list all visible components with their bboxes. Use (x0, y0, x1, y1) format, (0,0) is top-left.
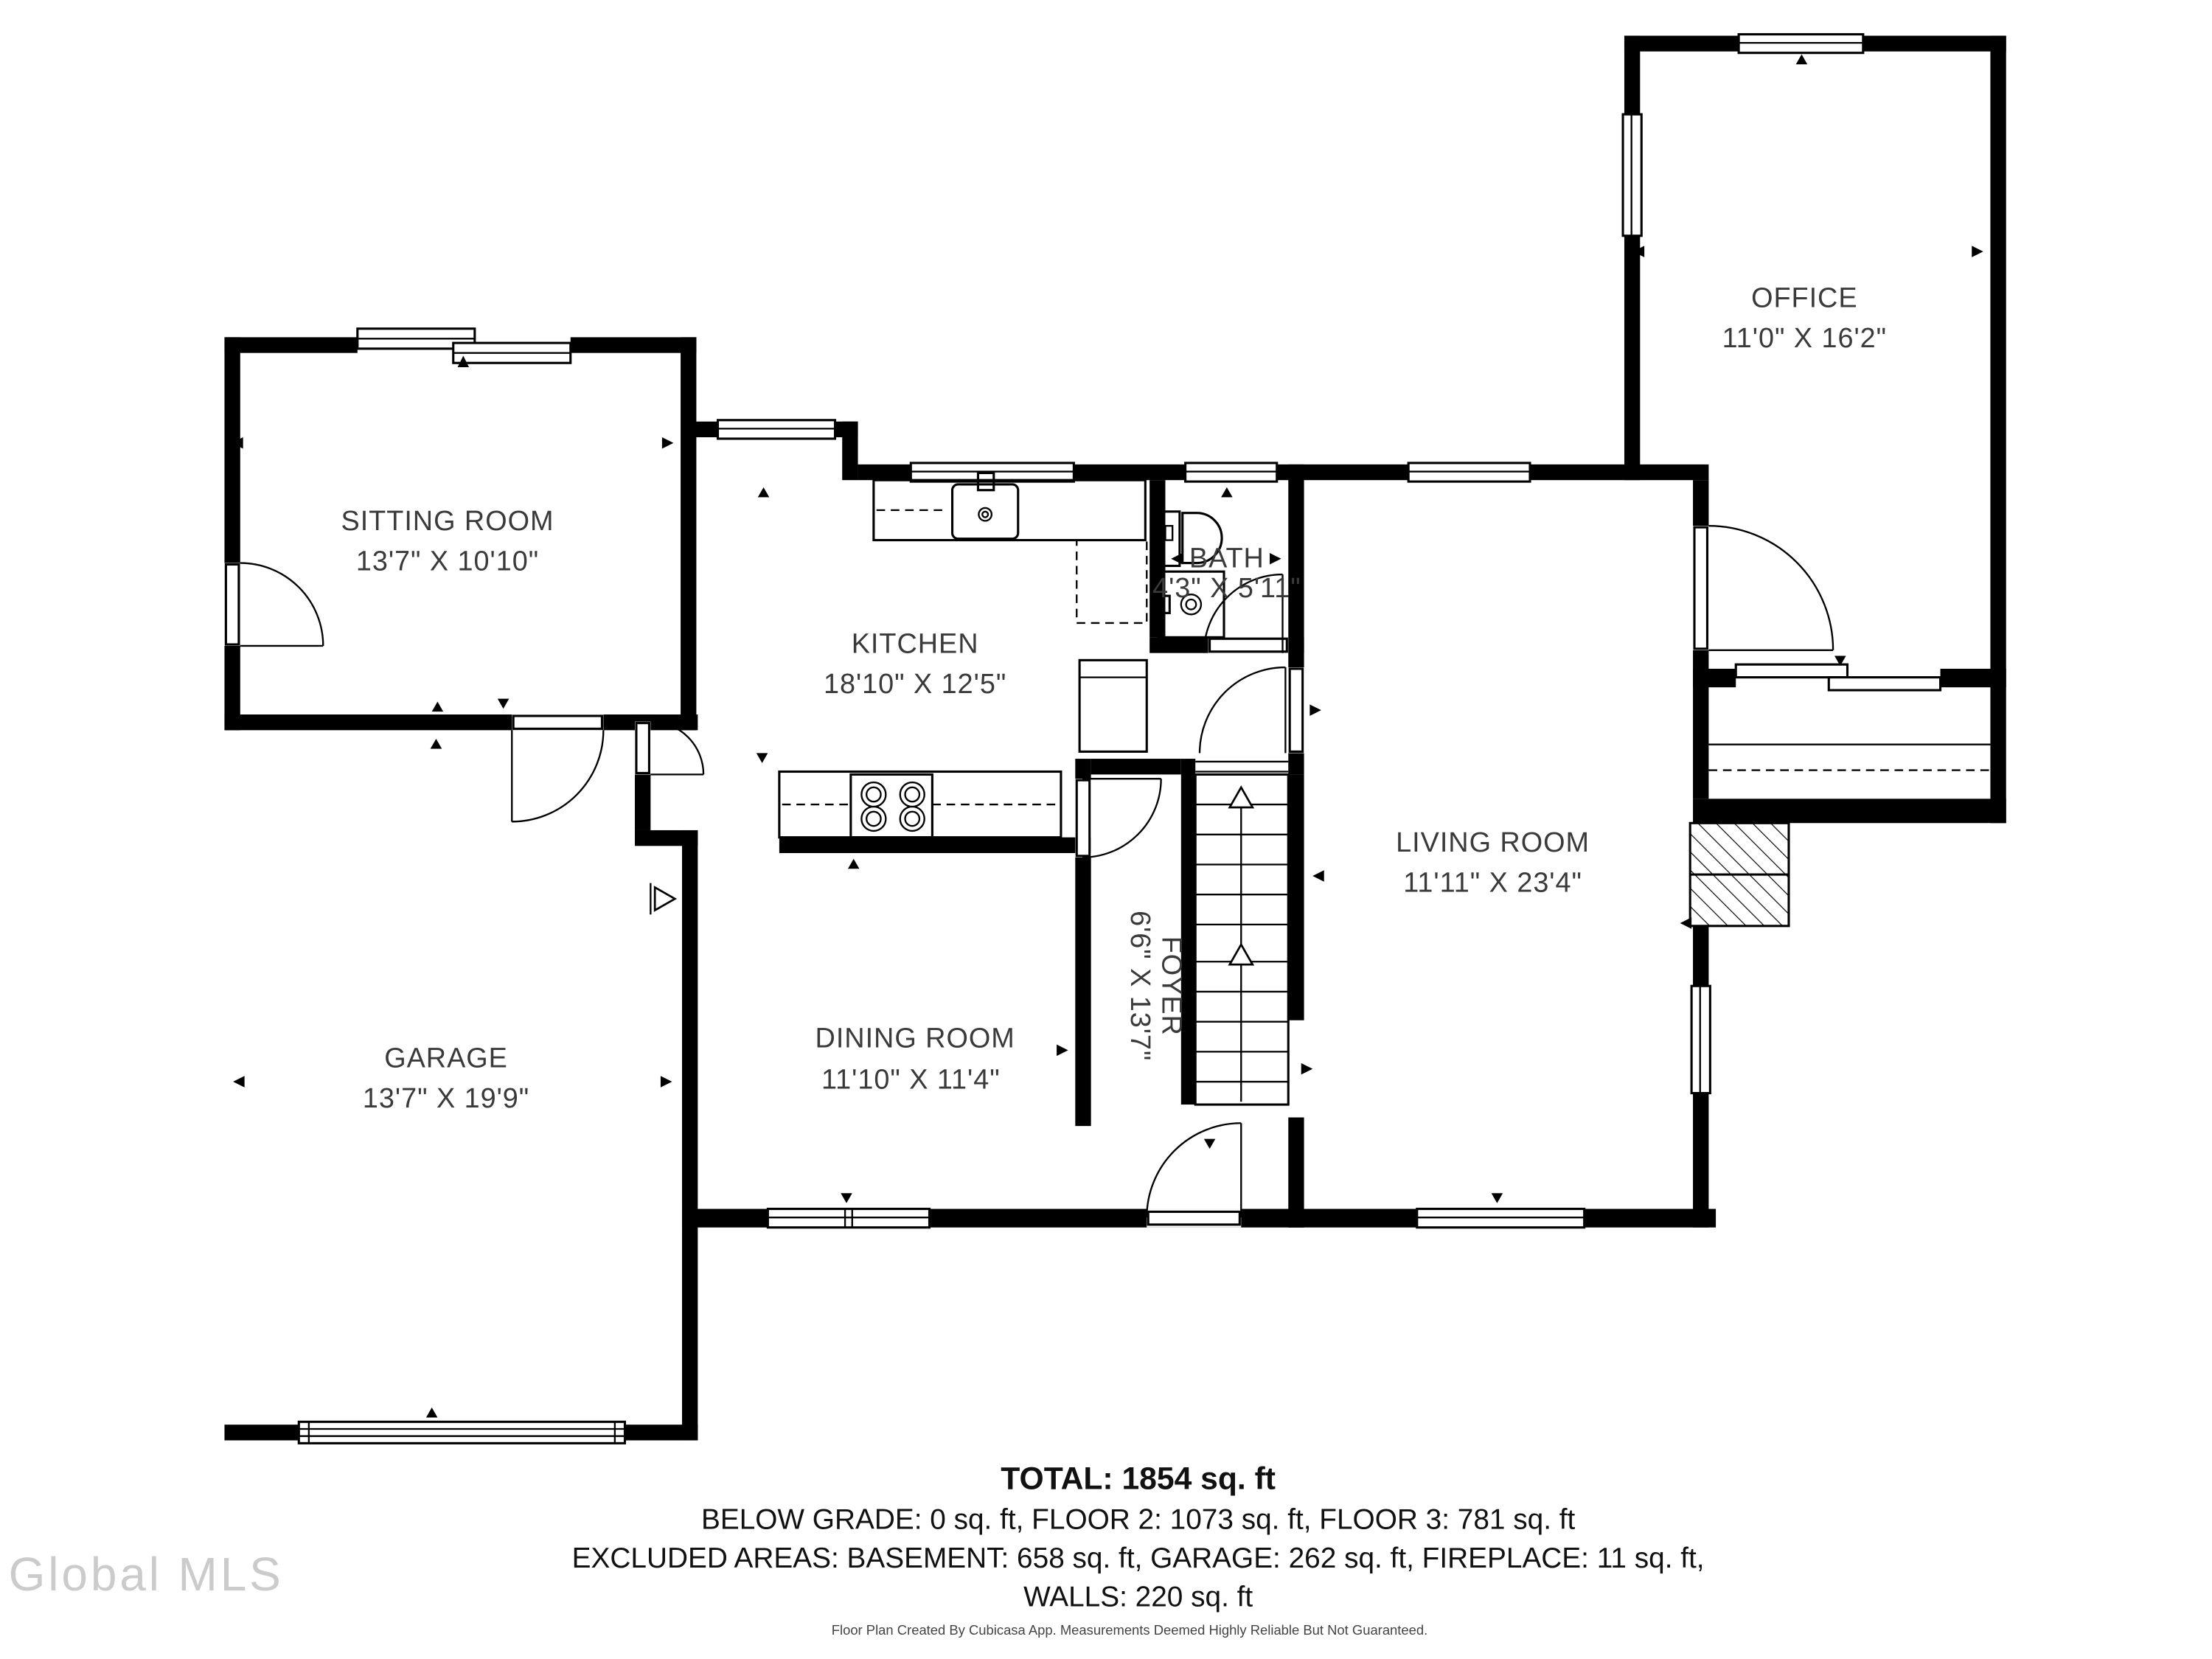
window-icon-office-top (1739, 33, 1863, 55)
arrow-icon (1204, 1139, 1216, 1150)
footer-disclaimer: Floor Plan Created By Cubicasa App. Meas… (832, 1622, 1428, 1638)
arrow-icon (432, 702, 444, 712)
door-kitchen-to-living (1200, 667, 1304, 753)
window-icon-living-right (1690, 986, 1711, 1093)
wall (1693, 480, 1708, 526)
wall (779, 838, 1091, 853)
door-sitting-to-garage (512, 714, 603, 821)
summary-total: TOTAL: 1854 sq. ft (1001, 1461, 1276, 1496)
room-label-foyer: FOYER (1156, 936, 1187, 1036)
room-dims-dining: 11'10" X 11'4" (821, 1065, 1001, 1096)
summary-line2: BELOW GRADE: 0 sq. ft, FLOOR 2: 1073 sq.… (701, 1504, 1576, 1536)
window-icon-living-top (1408, 462, 1530, 483)
window-icon-kitchen-a (717, 419, 835, 440)
wall (635, 714, 650, 722)
summary-line4: WALLS: 220 sq. ft (1023, 1581, 1253, 1613)
arrow-icon (1270, 553, 1281, 565)
wall (1091, 759, 1181, 774)
arrow-icon (1171, 553, 1183, 565)
room-dims-living: 11'11" X 23'4" (1403, 867, 1582, 898)
arrow-icon (1492, 1193, 1503, 1203)
fireplace-icon (1690, 823, 1789, 926)
room-dims-sitting: 13'7" X 10'10" (356, 546, 539, 577)
room-label-living: LIVING ROOM (1396, 827, 1590, 858)
wall (1624, 35, 1640, 480)
window-icon-bath (1186, 462, 1277, 483)
arrow-icon (426, 1408, 438, 1418)
stairs-up-arrow-icon (1230, 787, 1253, 807)
basement-direction-icon (650, 883, 675, 915)
arrow-icon (662, 437, 674, 449)
wall (681, 337, 696, 730)
floor-plan-page: SITTING ROOM 13'7" X 10'10" KITCHEN 18'1… (0, 0, 2212, 1659)
door-dining-to-foyer (1075, 779, 1161, 858)
door-arc-icon (240, 563, 323, 646)
room-dims-office: 11'0" X 16'2" (1722, 323, 1887, 354)
wall (1990, 35, 2006, 823)
room-label-kitchen: KITCHEN (852, 629, 979, 660)
door-living-to-office (1693, 526, 1833, 650)
summary-block: TOTAL: 1854 sq. ft BELOW GRADE: 0 sq. ft… (572, 1461, 1705, 1638)
room-dims-garage: 13'7" X 19'9" (363, 1083, 529, 1114)
door-sitting-exterior (224, 563, 323, 646)
room-dims-bath: 4'3" X 5'11" (1152, 573, 1301, 604)
wall (682, 830, 698, 1441)
arrow-icon (1680, 917, 1692, 929)
stairs-up-arrow-icon (1230, 945, 1253, 964)
stairs-icon (1195, 762, 1288, 1105)
room-label-sitting: SITTING ROOM (341, 506, 554, 537)
deck-area (1708, 745, 1990, 771)
wall (1693, 926, 1708, 986)
wall (635, 774, 650, 830)
arrow-icon (1221, 487, 1233, 498)
arrow-icon (1972, 246, 1983, 257)
wall (224, 337, 240, 730)
window-icon-dining-bottom (768, 1206, 929, 1231)
room-dims-foyer: 6'6" X 13'7" (1124, 911, 1155, 1061)
doors (224, 526, 1833, 1228)
wall (1288, 774, 1304, 1020)
wall (1288, 753, 1304, 774)
arrow-icon (1796, 55, 1808, 65)
room-label-dining: DINING ROOM (815, 1023, 1015, 1054)
upper-cabinet-dashed (1077, 540, 1147, 623)
watermark-logo: Global MLS (9, 1548, 284, 1601)
window-icon-living-bottom (1417, 1206, 1585, 1231)
arrow-icon (1301, 1063, 1313, 1075)
garage-door-icon (299, 1420, 625, 1444)
summary-line3: EXCLUDED AREAS: BASEMENT: 658 sq. ft, GA… (572, 1543, 1705, 1574)
door-front-entry (1147, 1123, 1241, 1227)
fridge-icon (1079, 660, 1147, 751)
wall (1693, 799, 2006, 823)
arrow-icon (1312, 870, 1324, 882)
arrow-icon (757, 753, 768, 763)
wall (1288, 465, 1304, 667)
wall (1075, 858, 1091, 1126)
room-labels: SITTING ROOM 13'7" X 10'10" KITCHEN 18'1… (341, 283, 1888, 1114)
arrow-icon (848, 859, 860, 869)
wall (1693, 1093, 1708, 1228)
room-label-office: OFFICE (1751, 283, 1857, 314)
kitchen-counter (874, 480, 1145, 540)
arrow-icon (1310, 704, 1321, 716)
stove-icon (779, 772, 1061, 838)
wall (224, 714, 698, 730)
room-dims-kitchen: 18'10" X 12'5" (824, 669, 1006, 700)
door-arc-icon (512, 730, 603, 821)
room-label-bath: BATH (1189, 543, 1265, 574)
door-arc-icon (1147, 1123, 1241, 1217)
arrow-icon (841, 1193, 852, 1203)
door-arc-icon (1082, 779, 1161, 858)
wall (842, 422, 858, 480)
arrow-icon (661, 1076, 672, 1088)
wall (1075, 759, 1091, 779)
door-arc-icon (1708, 526, 1833, 650)
arrow-icon (431, 739, 442, 749)
arrow-icon (758, 487, 770, 498)
floor-plan-drawing: SITTING ROOM 13'7" X 10'10" KITCHEN 18'1… (0, 0, 2212, 1659)
wall (1181, 759, 1195, 1105)
walls (224, 35, 2006, 1440)
window-icon-office-left (1621, 114, 1643, 236)
room-label-foyer-group: FOYER 6'6" X 13'7" (1124, 911, 1187, 1061)
arrow-icon (233, 1076, 245, 1088)
arrow-icon (498, 699, 509, 709)
arrow-icon (1057, 1045, 1068, 1057)
room-label-garage: GARAGE (384, 1043, 508, 1074)
door-arc-icon (1200, 667, 1285, 753)
window-icon-office-slider (1736, 663, 1940, 692)
